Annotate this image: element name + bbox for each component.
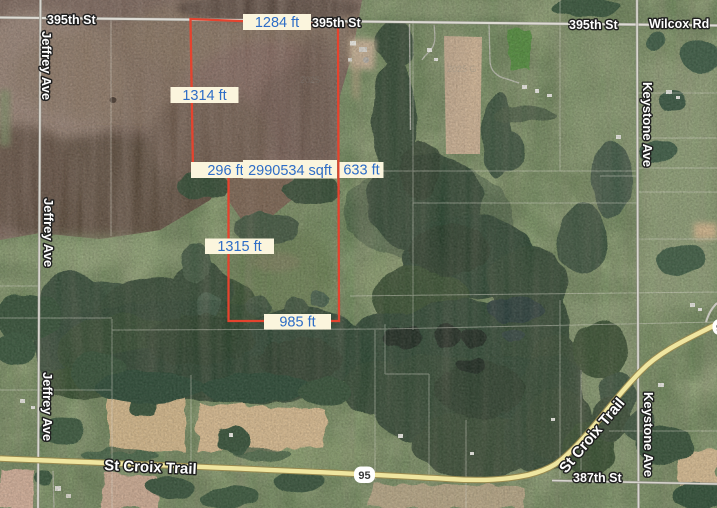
svg-text:395th St: 395th St — [47, 13, 96, 27]
svg-text:Jeffrey Ave: Jeffrey Ave — [41, 198, 56, 267]
svg-text:296 ft: 296 ft — [207, 163, 243, 179]
svg-text:Keystone Ave: Keystone Ave — [640, 82, 655, 167]
svg-text:985 ft: 985 ft — [279, 315, 315, 331]
svg-text:633 ft: 633 ft — [343, 163, 379, 179]
svg-text:Wilcox Rd: Wilcox Rd — [649, 17, 709, 31]
svg-text:1284 ft: 1284 ft — [255, 15, 299, 31]
svg-text:387th St: 387th St — [573, 471, 622, 485]
svg-text:Jeffrey Ave: Jeffrey Ave — [39, 31, 54, 100]
svg-text:95: 95 — [358, 470, 370, 482]
svg-text:Keystone Ave: Keystone Ave — [641, 392, 656, 477]
svg-text:395th St: 395th St — [312, 16, 361, 30]
svg-text:Jeffrey Ave: Jeffrey Ave — [40, 372, 55, 441]
svg-text:2990534 sqft: 2990534 sqft — [248, 163, 332, 179]
svg-text:1314 ft: 1314 ft — [182, 88, 226, 104]
svg-text:1315 ft: 1315 ft — [217, 239, 261, 255]
svg-text:395th St: 395th St — [569, 18, 618, 32]
